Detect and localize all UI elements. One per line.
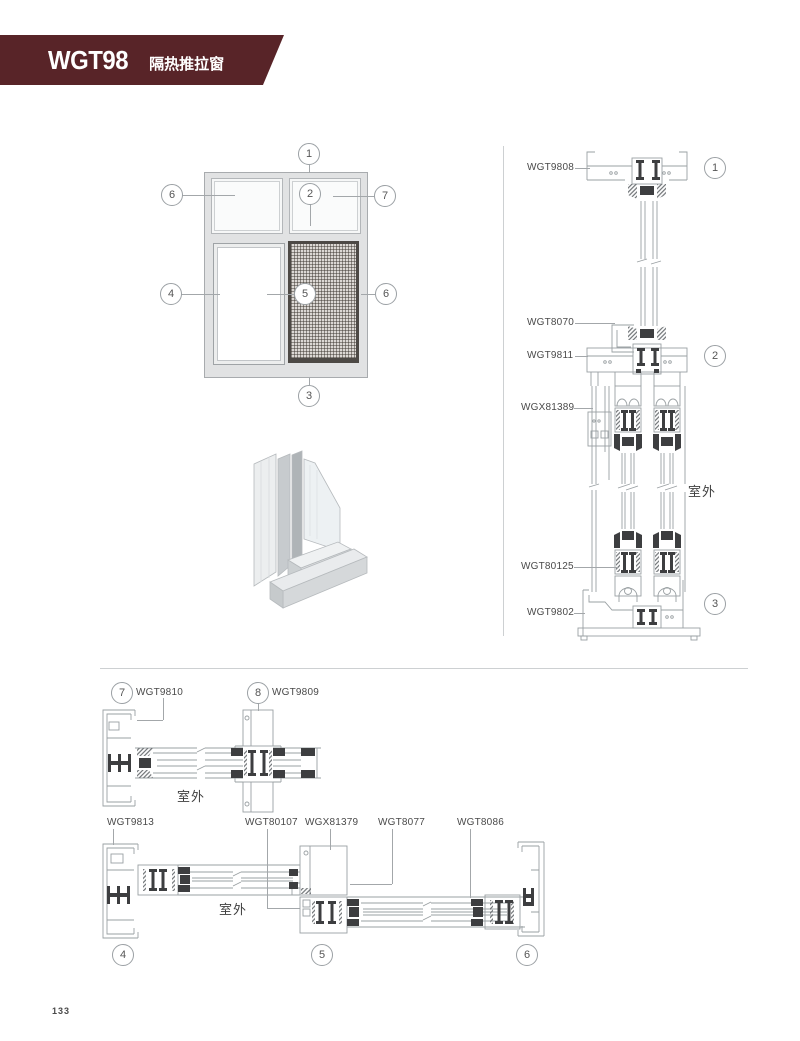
header-banner: WGT98 隔热推拉窗 (0, 35, 284, 85)
sliding-sash (213, 243, 285, 365)
sliding-sash-section-inner (653, 386, 681, 602)
product-subtitle: 隔热推拉窗 (149, 53, 224, 74)
part-label: WGT9808 (527, 162, 574, 173)
leader-line (575, 323, 615, 324)
part-label: WGT80107 (245, 817, 298, 828)
leader-line (330, 829, 331, 850)
part-label: WGT9802 (527, 607, 574, 618)
callout-6-right: 6 (375, 283, 397, 305)
outdoor-label: 室外 (219, 899, 247, 918)
plan-callout-6: 6 (516, 944, 538, 966)
glass (217, 247, 281, 361)
leader-line (574, 408, 593, 409)
section-callout-1: 1 (704, 157, 726, 179)
horizontal-divider (100, 668, 748, 669)
leader-line (267, 829, 268, 908)
page-number: 133 (52, 1006, 70, 1016)
leader-line (267, 294, 294, 295)
leader-line (574, 613, 585, 614)
part-label: WGT9809 (272, 687, 319, 698)
leader-line (361, 294, 375, 295)
leader-line (470, 829, 471, 898)
leader-line (163, 698, 164, 720)
callout-3: 3 (298, 385, 320, 407)
part-label: WGT9810 (136, 687, 183, 698)
callout-4: 4 (160, 283, 182, 305)
leader-line (182, 195, 235, 196)
gasket-hatch (628, 184, 666, 340)
plan-callout-5: 5 (311, 944, 333, 966)
leader-line (333, 196, 374, 197)
leader-line (113, 829, 114, 845)
glass (214, 181, 280, 231)
catalog-page: WGT98 隔热推拉窗 1 6 2 7 4 5 6 3 (0, 0, 800, 1041)
plan-callout-4: 4 (112, 944, 134, 966)
leader-line (137, 720, 163, 721)
outdoor-label: 室外 (177, 786, 205, 805)
leader-line (350, 884, 392, 885)
leader-line (258, 703, 259, 711)
plan-callout-8: 8 (247, 682, 269, 704)
callout-2: 2 (299, 183, 321, 205)
isometric-corner-drawing (230, 432, 390, 617)
outdoor-label: 室外 (688, 481, 716, 500)
fixed-pane-top-right (289, 178, 361, 234)
vertical-section-drawing (505, 140, 760, 650)
part-label: WGT8070 (527, 317, 574, 328)
part-label: WGT9813 (107, 817, 154, 828)
part-label: WGT9811 (527, 350, 573, 361)
leader-line (392, 829, 393, 884)
leader-line (309, 165, 310, 173)
leader-line (267, 908, 300, 909)
section-callout-2: 2 (704, 345, 726, 367)
leader-line (310, 204, 311, 226)
leader-line (309, 378, 310, 385)
sliding-sash-section-outer (614, 386, 642, 602)
callout-7: 7 (374, 185, 396, 207)
leader-line (181, 294, 220, 295)
callout-5: 5 (294, 283, 316, 305)
part-label: WGT8077 (378, 817, 425, 828)
part-label: WGT8086 (457, 817, 504, 828)
horizontal-section-bottom-drawing (95, 836, 560, 944)
vertical-divider (503, 146, 504, 636)
section-callout-3: 3 (704, 593, 726, 615)
callout-1: 1 (298, 143, 320, 165)
window-elevation-drawing (204, 172, 368, 378)
plan-callout-7: 7 (111, 682, 133, 704)
horizontal-section-top-drawing (95, 702, 335, 814)
part-label: WGX81379 (305, 817, 358, 828)
part-label: WGT80125 (521, 561, 574, 572)
leader-line (574, 567, 619, 568)
part-label: WGX81389 (521, 402, 574, 413)
fixed-pane-top-left (211, 178, 283, 234)
leader-line (575, 356, 588, 357)
callout-6-left: 6 (161, 184, 183, 206)
product-code: WGT98 (48, 35, 128, 85)
leader-line (575, 168, 590, 169)
